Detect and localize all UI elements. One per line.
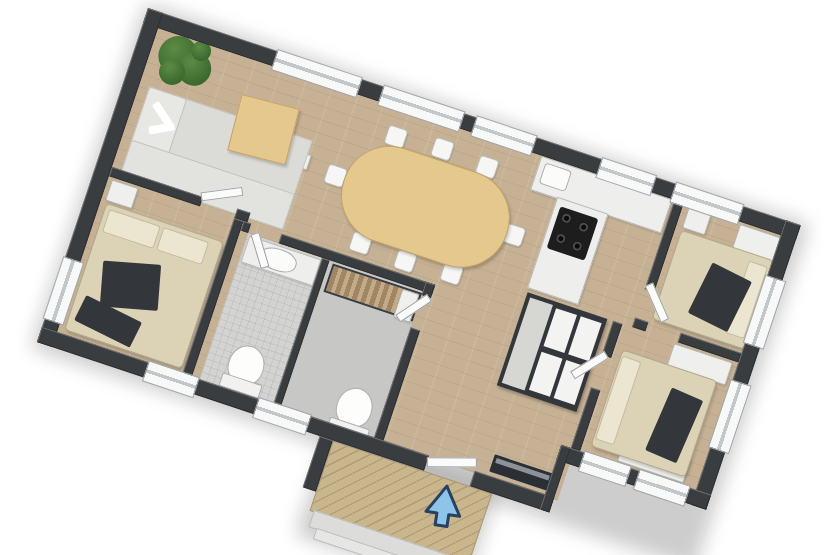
dark-throw-blanket [100,261,161,311]
rotated-plan-group [0,8,801,555]
door-entry [427,457,477,467]
entry-arrow-icon [421,480,467,531]
floorplan-canvas [0,0,831,555]
burner [572,240,583,251]
burner [555,233,566,244]
burner [561,213,572,224]
burner [578,222,589,233]
